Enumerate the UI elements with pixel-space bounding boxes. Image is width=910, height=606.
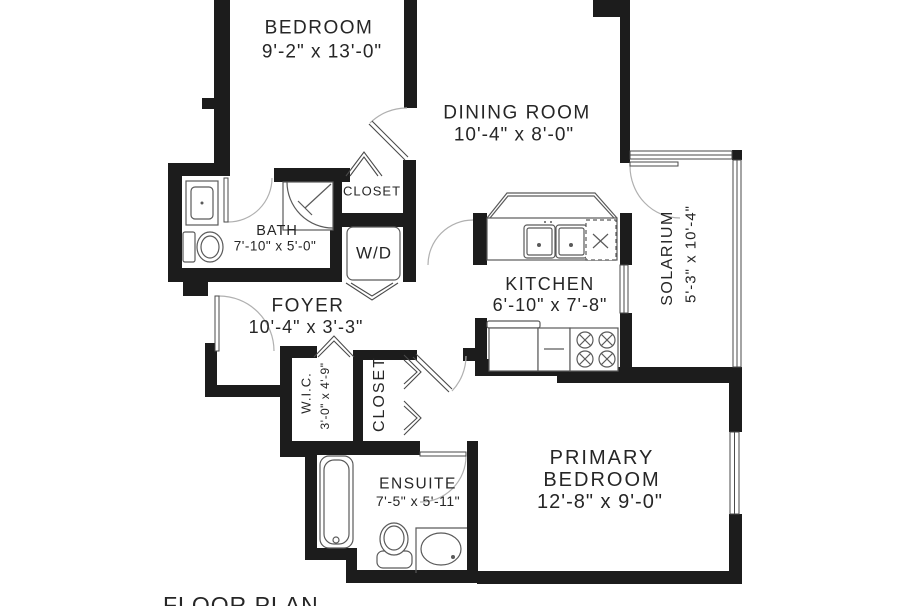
fridge [487, 321, 540, 371]
floor-plan-canvas: BEDROOM 9'-2" x 13'-0" DINING ROOM 10'-4… [0, 0, 910, 606]
entry-door-leaf [215, 296, 219, 351]
bedroom-closet-label: CLOSET [343, 185, 401, 198]
ensuite-door-leaf [420, 452, 466, 456]
bath-toilet [183, 232, 223, 262]
solarium-right-window [733, 160, 741, 367]
ensuite-label: ENSUITE [379, 476, 457, 492]
dining-door-leaf [369, 124, 405, 160]
stove-burners [570, 328, 618, 371]
kitchen-entry-arc [428, 220, 473, 265]
kitchen-label: KITCHEN [505, 275, 595, 293]
solarium-door-leaf [630, 162, 678, 166]
hall-closet-label: CLOSET [372, 356, 388, 432]
solarium-top-window [630, 151, 732, 159]
washer-dryer-label: W/D [356, 245, 392, 262]
hall-closet-bifold-lower [404, 401, 421, 435]
primary-door-arc [452, 356, 466, 391]
bath-label: BATH [256, 224, 298, 239]
bedroom-dims: 9'-2" x 13'-0" [262, 43, 382, 62]
kitchen-counter-sink [487, 193, 617, 260]
wic-label: W.I.C. [300, 372, 313, 413]
dining-room-label: DINING ROOM [443, 104, 590, 123]
kitchen-dims: 6'-10" x 7'-8" [493, 296, 608, 314]
foyer-dims: 10'-4" x 3'-3" [249, 318, 364, 336]
foyer-label: FOYER [272, 297, 345, 316]
kitchen-lower-counter [538, 328, 570, 371]
primary-bedroom-label-line1: PRIMARY [550, 448, 655, 468]
bedroom-closet-bifold [346, 152, 382, 176]
bedroom-label: BEDROOM [265, 19, 374, 38]
primary-bedroom-label-line2: BEDROOM [543, 470, 660, 490]
primary-bedroom-dims: 12'-8" x 9'-0" [537, 492, 663, 512]
floor-plan-drawing [0, 0, 910, 606]
bath-door-arc [228, 178, 272, 222]
ensuite-vanity-sink [416, 528, 467, 573]
dining-door-arc [370, 108, 407, 123]
ensuite-toilet [377, 523, 412, 568]
wic-dims: 3'-0" x 4'-9" [319, 363, 331, 430]
kitchen-passthrough-window [620, 265, 628, 313]
laundry-bifold [346, 283, 398, 300]
primary-bedroom-window [730, 432, 739, 514]
hall-closet-bifold-upper [404, 355, 421, 389]
floor-plan-title: FLOOR PLAN [163, 594, 319, 606]
wic-bifold [314, 336, 354, 357]
solarium-label: SOLARIUM [660, 210, 676, 306]
bath-door-leaf [224, 178, 228, 222]
ensuite-dims: 7'-5" x 5'-11" [376, 494, 460, 508]
bath-dims: 7'-10" x 5'-0" [234, 239, 317, 253]
ensuite-tub [320, 456, 353, 548]
bath-vanity-sink [186, 181, 218, 225]
solarium-dims: 5'-3" x 10'-4" [684, 205, 699, 303]
dining-room-dims: 10'-4" x 8'-0" [454, 126, 574, 145]
